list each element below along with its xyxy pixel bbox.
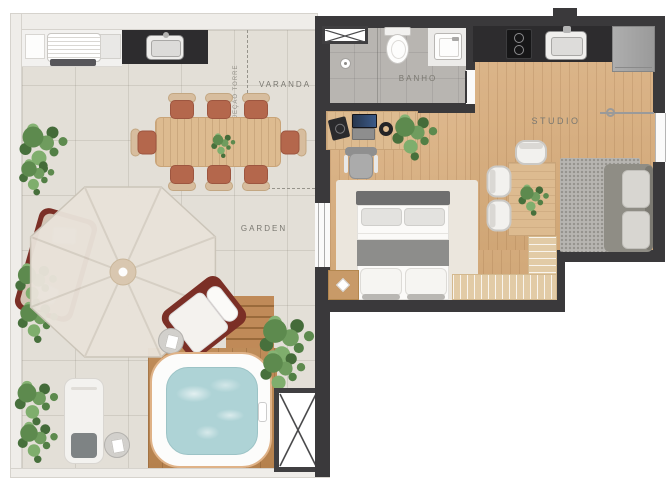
dining-chair xyxy=(202,93,236,120)
studio-chair xyxy=(487,200,512,232)
sofa xyxy=(604,164,653,252)
nightstand xyxy=(328,270,359,300)
desk-plant xyxy=(395,117,415,137)
refrigerator xyxy=(612,26,655,72)
burner xyxy=(514,45,524,55)
bed-blanket xyxy=(357,240,449,266)
cooktop xyxy=(506,29,532,59)
terrace-sink-faucet xyxy=(163,32,169,38)
plant xyxy=(263,319,287,343)
bed-pillow xyxy=(361,208,402,226)
toilet-bowl xyxy=(386,34,409,64)
shaft-duct xyxy=(322,26,368,44)
office-chair-seat xyxy=(349,153,373,179)
bed-pillow xyxy=(404,208,445,226)
kitchen-faucet xyxy=(563,26,571,33)
plant xyxy=(263,353,283,373)
studio-wall-right-lower xyxy=(653,162,665,262)
hot-tub-control xyxy=(258,402,267,422)
bed-headboard xyxy=(356,191,450,205)
lounger-cushion xyxy=(71,433,97,458)
terrace-studio-glass-door xyxy=(315,203,330,267)
studio-wall-top-nib xyxy=(553,8,577,16)
room-label-garden: GARDEN xyxy=(234,224,294,233)
sink-faucet xyxy=(452,37,459,41)
right-window xyxy=(655,113,666,162)
headphones xyxy=(379,122,393,136)
table-plant xyxy=(213,135,224,146)
studio-chair xyxy=(487,166,512,198)
terrace-sink-basin xyxy=(151,40,181,57)
hedge xyxy=(20,424,38,442)
studio-chair xyxy=(515,140,547,165)
bed-foot-cushion xyxy=(360,268,402,296)
glass-door-handle xyxy=(606,108,615,117)
laptop-screen xyxy=(352,114,377,128)
burner xyxy=(514,33,524,43)
room-label-varanda: VARANDA xyxy=(250,80,320,89)
dining-chair xyxy=(239,93,273,120)
kitchen-sink xyxy=(545,31,587,60)
hot-tub-water xyxy=(166,367,258,455)
bathroom-door-leaf xyxy=(465,71,467,103)
side-table xyxy=(158,328,184,354)
dining-chair xyxy=(131,126,158,160)
terrace-sink xyxy=(146,35,184,60)
dining-chair xyxy=(165,93,199,120)
cabinet-door xyxy=(25,34,45,59)
shower-drain xyxy=(340,58,351,69)
bathroom-sink xyxy=(434,33,462,60)
hedge xyxy=(18,384,37,403)
sun-lounger xyxy=(64,378,104,464)
dining-chair xyxy=(239,164,273,191)
cabinet-panel xyxy=(100,34,121,59)
plant xyxy=(23,127,44,148)
bed-bench xyxy=(407,294,445,300)
room-label-studio: STUDIO xyxy=(520,116,592,126)
bathroom-door-opening xyxy=(466,70,475,104)
bed-bench xyxy=(362,294,400,300)
side-table xyxy=(104,432,130,458)
sofa-cushion xyxy=(622,211,650,249)
floor-plan: PROJEÇÃO TORRE xyxy=(0,0,672,493)
laptop-keyboard xyxy=(352,128,375,140)
office-chair-arm xyxy=(344,155,348,173)
office-chair-arm xyxy=(374,155,378,173)
bathroom-partition xyxy=(377,26,378,104)
barbecue-grill xyxy=(47,33,101,62)
bed-foot-cushion xyxy=(405,268,447,296)
studio-table-plant xyxy=(520,186,533,199)
hot-tub xyxy=(150,352,272,468)
closet-rack xyxy=(452,274,557,300)
grill-grate xyxy=(50,59,96,66)
studio-wall-bottom-left xyxy=(315,300,565,312)
sofa-cushion xyxy=(622,170,650,208)
dining-chair xyxy=(280,126,307,160)
terrace-wall-top xyxy=(10,13,318,30)
studio-table xyxy=(508,162,556,236)
room-label-banho: BANHO xyxy=(394,74,442,83)
